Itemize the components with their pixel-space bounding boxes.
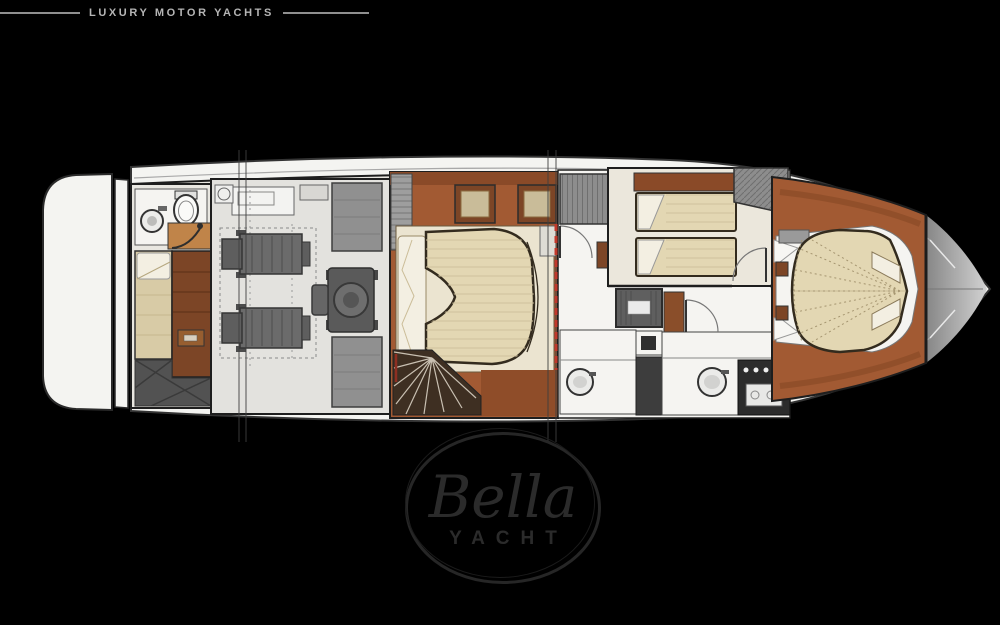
vip-cabin [772, 177, 926, 401]
crew-cabin [131, 184, 211, 408]
bella-yacht-logo: Bella YACHT [405, 432, 601, 584]
page: LUXURY MOTOR YACHTS [0, 0, 1000, 625]
dresser-right [518, 185, 556, 223]
shower-cabinet [168, 223, 211, 249]
toilet-icon [174, 191, 198, 225]
midship-section [558, 168, 790, 418]
bathroom [560, 330, 662, 415]
swim-platform [43, 174, 112, 410]
vip-bed [792, 230, 907, 352]
dresser-left [455, 185, 495, 223]
vip-table-top [776, 262, 788, 276]
washer-unit [616, 289, 662, 327]
twin-bed-top [636, 193, 736, 231]
crew-wardrobe [172, 251, 211, 377]
engine-room [211, 179, 390, 414]
master-cabin [390, 172, 558, 418]
closet-left [560, 174, 608, 224]
vip-table-bottom [776, 306, 788, 320]
logo-subtitle: YACHT [449, 528, 568, 550]
transom [115, 179, 128, 408]
twin-cabin [608, 168, 790, 286]
hall-cabinet [664, 292, 684, 332]
logo-script-text: Bella [429, 468, 578, 526]
master-bed [398, 229, 538, 364]
twin-bed-bottom [636, 238, 736, 276]
crew-berth [135, 251, 172, 359]
